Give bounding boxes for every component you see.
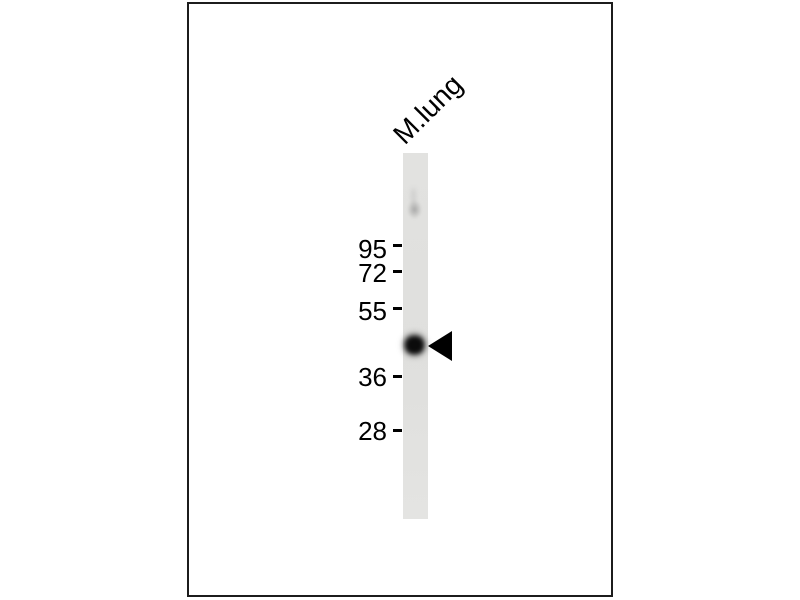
mw-marker-label-55: 55 [330,298,387,324]
mw-tick-55 [393,307,402,310]
blot-frame [187,2,613,597]
mw-tick-36 [393,375,402,378]
mw-tick-28 [393,429,402,432]
mw-marker-label-28: 28 [330,418,387,444]
mw-marker-label-36: 36 [330,364,387,390]
mw-marker-label-72: 72 [330,260,387,286]
nonspecific-smudge [407,200,422,219]
mw-tick-72 [393,270,402,273]
mw-tick-95 [393,244,402,247]
protein-band [405,336,424,354]
western-blot-figure: M.lung 95 72 55 36 28 [0,0,800,600]
band-arrow-icon [428,331,452,361]
